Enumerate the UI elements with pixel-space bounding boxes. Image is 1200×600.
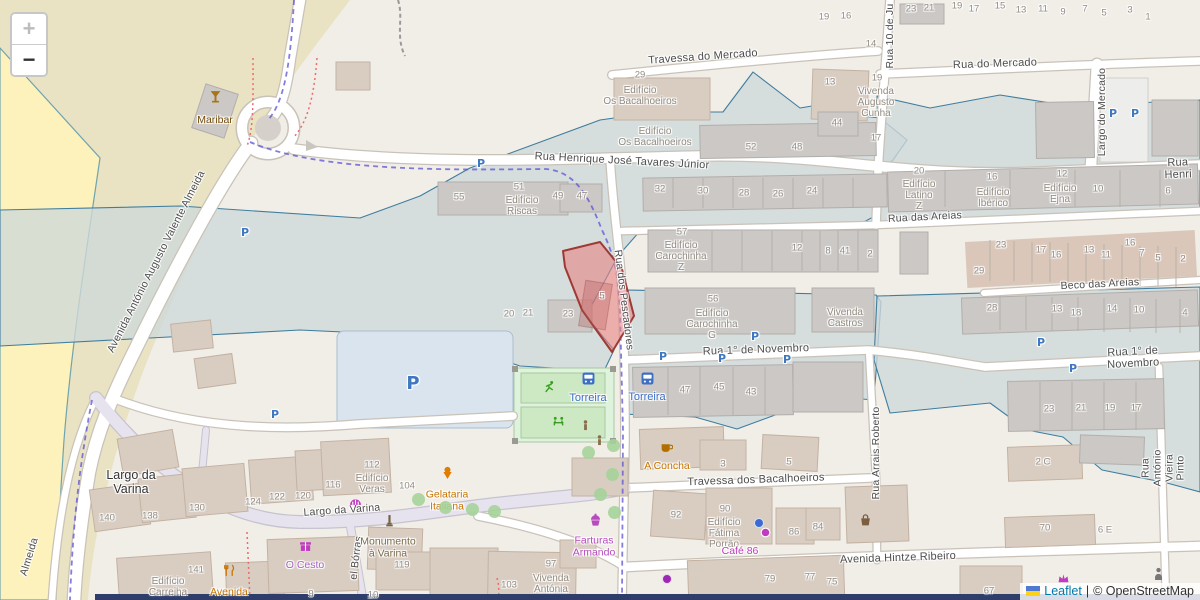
parking-lane (1100, 78, 1148, 162)
roundabout-island (255, 115, 281, 141)
osm-copyright: © OpenStreetMap (1093, 584, 1194, 598)
map-canvas[interactable]: Travessa do MercadoRua do MercadoRua Hen… (0, 0, 1200, 600)
zoom-in-button[interactable]: + (12, 14, 46, 45)
playground-area (512, 366, 616, 444)
zoom-out-button[interactable]: − (12, 45, 46, 75)
ukraine-flag-icon (1026, 586, 1040, 596)
zoom-control: + − (10, 12, 48, 77)
attribution-separator: | (1086, 584, 1089, 598)
attribution-bar: Leaflet | © OpenStreetMap (1020, 583, 1200, 600)
footpath (398, 0, 405, 56)
leaflet-link[interactable]: Leaflet (1044, 584, 1082, 598)
map-tiles (0, 0, 1200, 600)
